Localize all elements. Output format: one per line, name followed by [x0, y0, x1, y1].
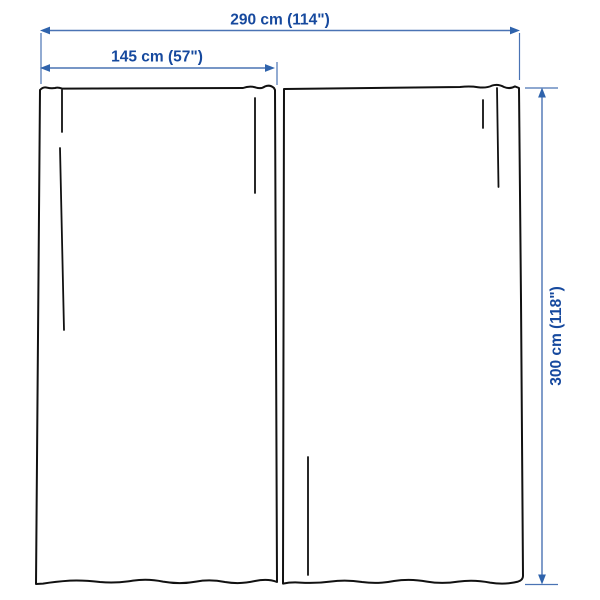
curtain-diagram-canvas: 290 cm (114") 145 cm (57") 300 cm (118"): [0, 0, 600, 600]
arrow-right-icon: [265, 64, 275, 72]
dimension-panel-width-label: 145 cm (57"): [111, 49, 203, 66]
dimension-height: 300 cm (118"): [525, 88, 565, 585]
arrow-right-icon: [510, 27, 520, 35]
curtain-panel-right-outline: [283, 85, 523, 584]
arrow-down-icon: [538, 575, 546, 585]
curtain-panel-left-outline: [36, 86, 277, 584]
dimension-height-label: 300 cm (118"): [548, 286, 565, 386]
dimension-total-width-label: 290 cm (114"): [230, 12, 330, 29]
product-dimension-diagram: 290 cm (114") 145 cm (57") 300 cm (118"): [0, 0, 600, 600]
arrow-up-icon: [538, 88, 546, 98]
curtain-panels: [36, 85, 523, 584]
dimension-panel-width: 145 cm (57"): [40, 49, 277, 86]
